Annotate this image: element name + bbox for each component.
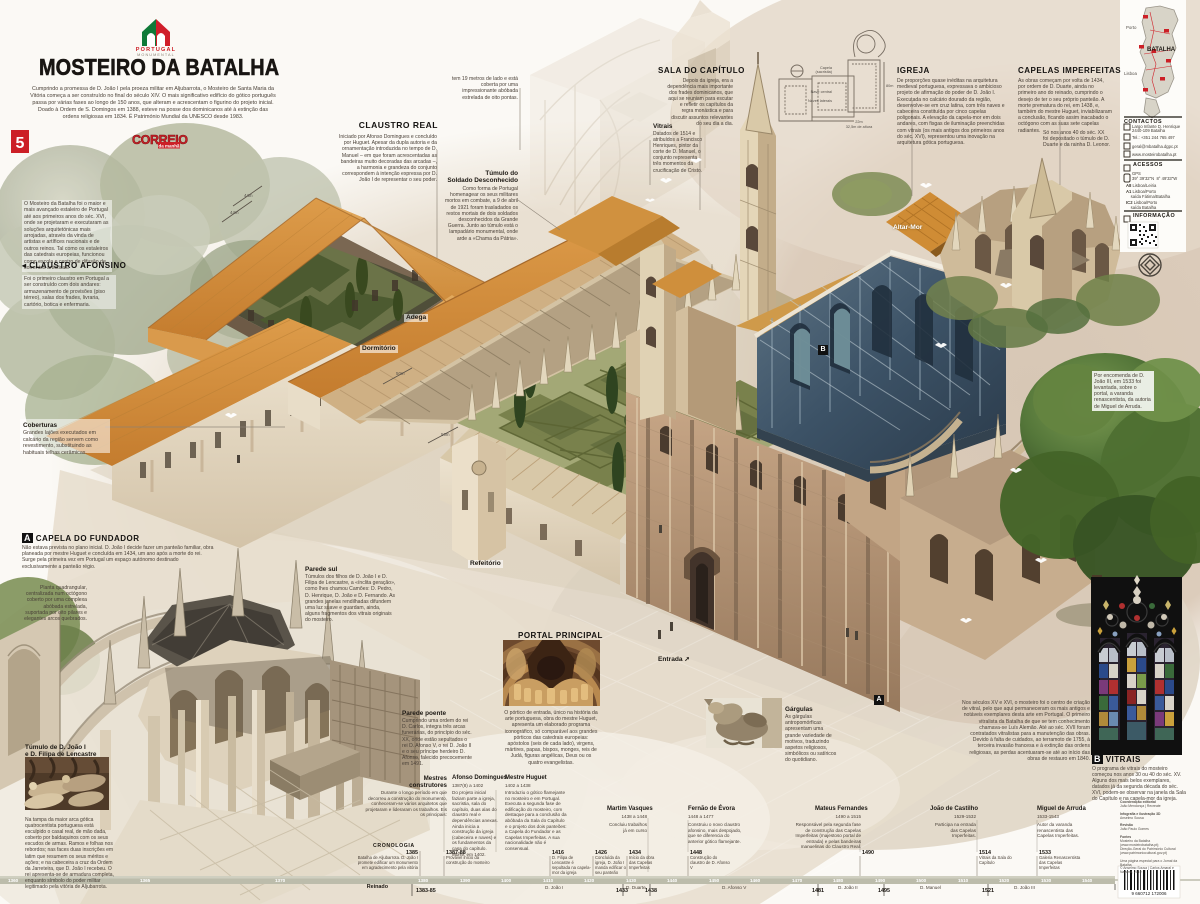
svg-text:1520: 1520 — [999, 878, 1010, 883]
svg-text:1540: 1540 — [1082, 878, 1093, 883]
svg-text:1370: 1370 — [275, 878, 286, 883]
svg-text:1510: 1510 — [958, 878, 969, 883]
svg-text:1530: 1530 — [1041, 878, 1052, 883]
svg-text:1440: 1440 — [667, 878, 678, 883]
svg-text:1420: 1420 — [584, 878, 595, 883]
svg-text:da manhã: da manhã — [158, 143, 180, 148]
svg-text:1400: 1400 — [501, 878, 512, 883]
svg-text:1480: 1480 — [833, 878, 844, 883]
svg-text:1390: 1390 — [460, 878, 471, 883]
svg-text:1410: 1410 — [543, 878, 554, 883]
svg-text:1500: 1500 — [916, 878, 927, 883]
svg-text:1460: 1460 — [750, 878, 761, 883]
svg-text:1380: 1380 — [418, 878, 429, 883]
svg-text:1365: 1365 — [140, 878, 151, 883]
svg-text:5: 5 — [16, 135, 25, 152]
svg-text:1490: 1490 — [875, 878, 886, 883]
svg-text:1360: 1360 — [8, 878, 19, 883]
svg-text:1470: 1470 — [792, 878, 803, 883]
svg-text:9 660712 172006: 9 660712 172006 — [1131, 891, 1167, 896]
svg-text:1430: 1430 — [626, 878, 637, 883]
svg-text:1450: 1450 — [709, 878, 720, 883]
